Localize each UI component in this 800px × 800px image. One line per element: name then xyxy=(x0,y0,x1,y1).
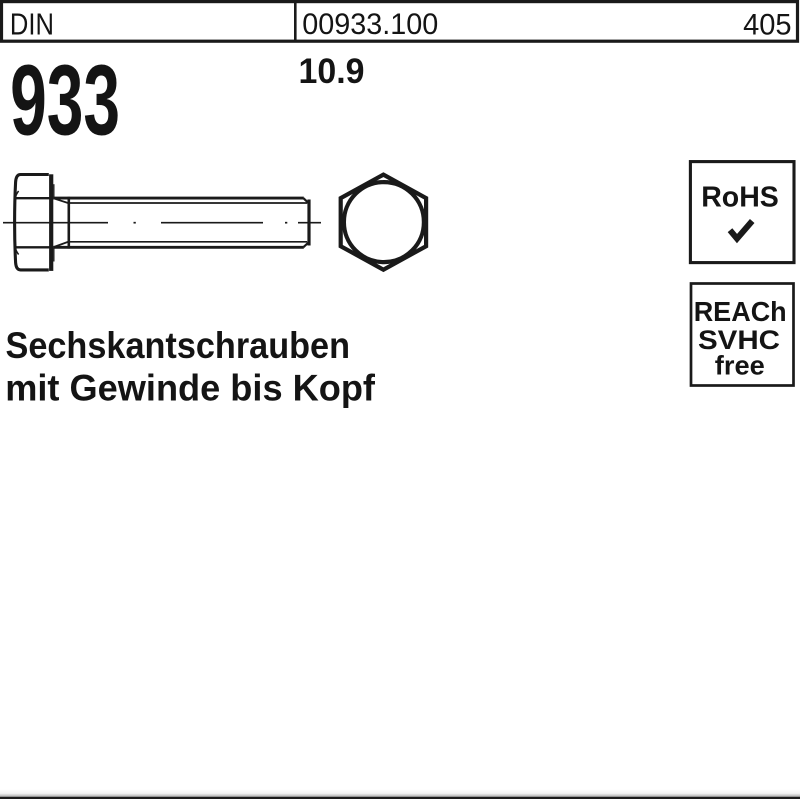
svg-text:DIN: DIN xyxy=(10,6,54,41)
svg-text:REACh: REACh xyxy=(694,296,787,327)
svg-text:Sechskantschrauben: Sechskantschrauben xyxy=(6,324,351,366)
svg-text:RoHS: RoHS xyxy=(701,182,779,214)
svg-text:405: 405 xyxy=(743,9,792,42)
svg-text:933: 933 xyxy=(10,44,120,156)
svg-text:free: free xyxy=(715,351,765,381)
svg-text:mit Gewinde bis Kopf: mit Gewinde bis Kopf xyxy=(5,367,375,409)
svg-text:10.9: 10.9 xyxy=(299,51,365,91)
svg-text:00933.100: 00933.100 xyxy=(302,8,438,41)
